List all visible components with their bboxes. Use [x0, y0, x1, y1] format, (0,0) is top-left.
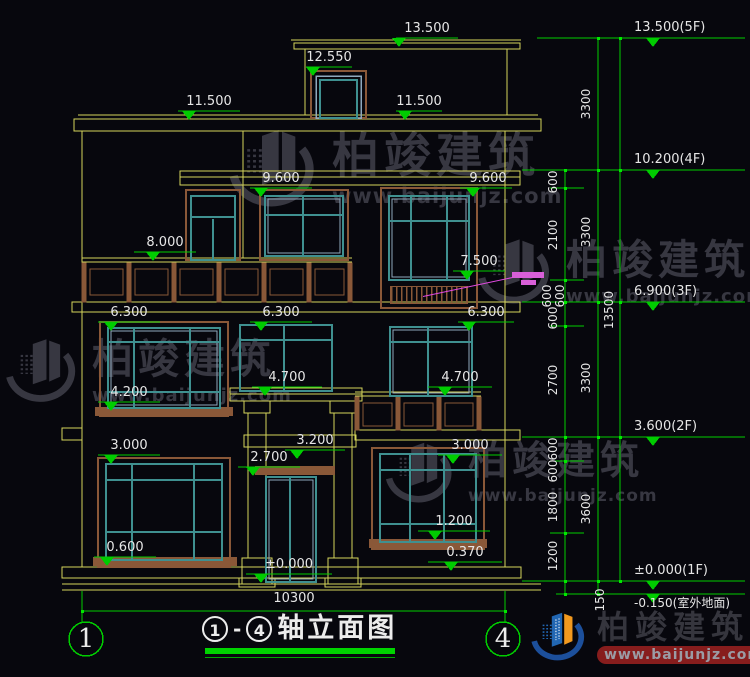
dim-floor-height: 3600: [580, 494, 592, 525]
porch-column-capital-left: [244, 401, 270, 413]
title-axis-circle-4: 4: [246, 616, 272, 642]
elevation-label: 4.700: [252, 371, 322, 386]
title-axis-circle-1: 1: [202, 616, 228, 642]
drawing-title: 1 - 4 轴立面图: [202, 615, 397, 642]
title-dash: -: [233, 619, 241, 639]
dim-floor-height: 3300: [580, 89, 592, 120]
dim-segment: 600: [547, 460, 559, 483]
title-underline-thin: [205, 657, 395, 658]
level-label-2f: 3.600(2F): [634, 420, 697, 435]
dim-floor-height: 3300: [580, 217, 592, 248]
penthouse-door-frame: [316, 76, 361, 118]
door-lintel: [256, 467, 334, 474]
annotation-highlight: [512, 272, 544, 278]
window-sill: [96, 408, 232, 415]
annotation-highlight: [521, 280, 536, 285]
dim-segment: 600: [541, 285, 553, 308]
cad-elevation-screenshot: { "drawing_title": "①-④轴立面图", "elev": { …: [0, 0, 750, 677]
windows-doors: [106, 76, 476, 582]
elevation-label: 8.000: [134, 236, 196, 251]
elevation-label: 0.370: [428, 546, 502, 561]
dim-segment: 600: [547, 307, 559, 330]
elevation-label: ±0.000: [246, 558, 332, 573]
dim-segment: 1800: [547, 492, 559, 523]
elevation-label: 13.500: [396, 22, 458, 37]
brand-site: www.baijunjz.com: [597, 646, 750, 664]
dim-segment: 2100: [547, 220, 559, 251]
dim-segment: 600: [554, 285, 566, 308]
elevation-label: 3.200: [285, 434, 345, 449]
porch-column-capital-right: [330, 401, 356, 413]
axis-number-4: 4: [486, 622, 520, 656]
dim-segment: 600: [547, 171, 559, 194]
level-label-3f: 6.900(3F): [634, 285, 697, 300]
penthouse-door: [320, 80, 357, 118]
level-label-4f: 10.200(4F): [634, 153, 705, 168]
elevation-label: 3.000: [98, 439, 160, 454]
overall-width-dim: 10300: [244, 592, 344, 607]
elevation-label: 7.500: [453, 255, 505, 270]
floor1-window-surround-right: [372, 448, 484, 549]
brand-logo-block: 柏竣建筑 www.baijunjz.com: [527, 609, 750, 666]
main-roof-cornice: [74, 119, 541, 131]
balcony2f-railing: [355, 397, 481, 430]
level-label-1f: ±0.000(1F): [634, 564, 708, 579]
dim-segment: 1200: [547, 541, 559, 572]
elevation-label: 12.550: [302, 51, 356, 66]
elevation-label: 2.700: [238, 451, 300, 466]
elevation-label: 4.200: [98, 386, 160, 401]
elevation-label: 9.600: [460, 172, 516, 187]
elevation-label: 4.700: [428, 371, 492, 386]
title-text: 轴立面图: [277, 615, 397, 642]
elevation-label: 9.600: [250, 172, 312, 187]
elevation-label: 1.200: [418, 515, 490, 530]
axis-number-1: 1: [69, 622, 103, 656]
title-underline: [205, 648, 395, 654]
balcony4f-railing: [82, 263, 352, 302]
elevation-label: 6.300: [458, 306, 514, 321]
elevation-label: 11.500: [178, 95, 240, 110]
dim-floor-height: 3300: [580, 363, 592, 394]
elevation-label: 6.300: [98, 306, 160, 321]
dim-segment: 600: [547, 438, 559, 461]
elevation-label: 11.500: [394, 95, 444, 110]
dim-segment: 2700: [547, 365, 559, 396]
baijun-logo-color-icon: [527, 609, 589, 666]
elevation-label: 6.300: [250, 306, 312, 321]
penthouse-roof-slab: [294, 43, 520, 49]
level-label-5f: 13.500(5F): [634, 21, 705, 36]
dim-total-height: 13500: [603, 291, 615, 329]
porch-column-base-right: [328, 558, 358, 584]
brand-name: 柏竣建筑: [597, 611, 750, 643]
elevation-label: 0.600: [94, 541, 156, 556]
elevation-label: 3.000: [438, 439, 502, 454]
